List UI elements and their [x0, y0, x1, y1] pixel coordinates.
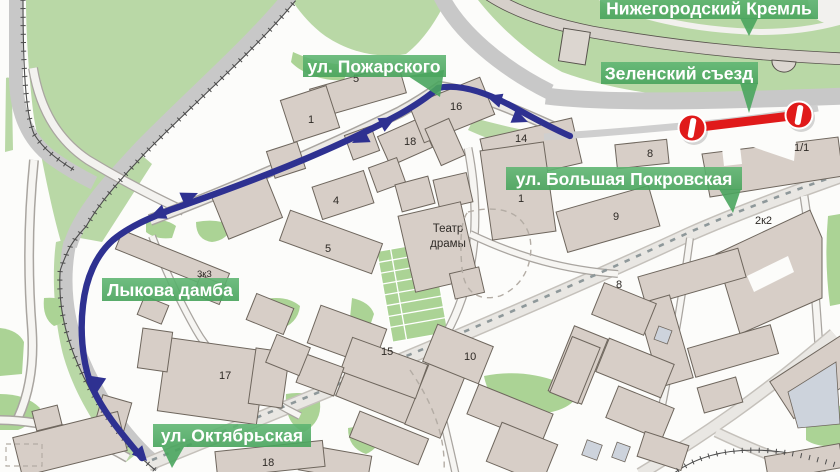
- svg-text:Лыкова дамба: Лыкова дамба: [107, 280, 233, 300]
- svg-text:8: 8: [647, 148, 653, 160]
- svg-text:Театр: Театр: [433, 223, 464, 235]
- svg-text:10: 10: [464, 351, 476, 363]
- svg-text:1/1: 1/1: [794, 142, 809, 154]
- svg-text:16: 16: [450, 101, 462, 113]
- svg-text:ул. Пожарского: ул. Пожарского: [307, 57, 440, 77]
- svg-text:5: 5: [325, 243, 331, 255]
- svg-text:15: 15: [381, 346, 393, 358]
- svg-text:Зеленский съезд: Зеленский съезд: [605, 64, 754, 84]
- svg-text:8: 8: [616, 279, 622, 291]
- svg-text:2к2: 2к2: [755, 215, 772, 227]
- svg-text:ул. Большая Покровская: ул. Большая Покровская: [516, 169, 733, 189]
- svg-text:1: 1: [518, 193, 524, 205]
- svg-text:Нижегородский Кремль: Нижегородский Кремль: [606, 0, 812, 19]
- svg-text:18: 18: [262, 457, 274, 469]
- svg-text:17: 17: [219, 370, 231, 382]
- svg-text:9: 9: [613, 211, 619, 223]
- svg-text:4: 4: [333, 195, 339, 207]
- svg-text:14: 14: [515, 133, 527, 145]
- svg-text:ул. Октябрьская: ул. Октябрьская: [161, 426, 303, 446]
- svg-text:1: 1: [308, 114, 314, 126]
- svg-text:18: 18: [404, 136, 416, 148]
